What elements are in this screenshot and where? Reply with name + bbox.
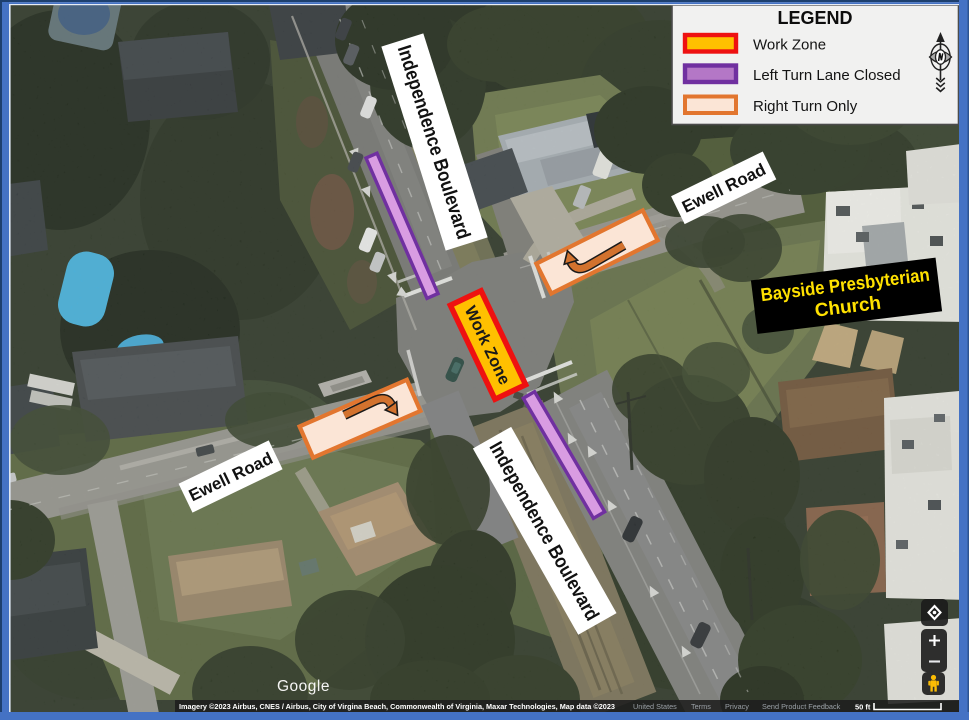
- svg-text:Privacy: Privacy: [725, 702, 749, 711]
- svg-text:Work Zone: Work Zone: [753, 37, 826, 54]
- svg-text:Right Turn Only: Right Turn Only: [753, 98, 858, 115]
- svg-text:Terms: Terms: [691, 702, 711, 711]
- svg-text:50 ft: 50 ft: [855, 703, 871, 712]
- svg-text:United States: United States: [633, 702, 677, 711]
- svg-text:LEGEND: LEGEND: [777, 8, 852, 28]
- svg-text:Imagery ©2023 Airbus, CNES / A: Imagery ©2023 Airbus, CNES / Airbus, Cit…: [179, 702, 615, 711]
- svg-text:Left Turn Lane Closed: Left Turn Lane Closed: [753, 67, 901, 84]
- svg-text:Send Product Feedback: Send Product Feedback: [762, 702, 841, 711]
- svg-text:Google: Google: [277, 678, 330, 695]
